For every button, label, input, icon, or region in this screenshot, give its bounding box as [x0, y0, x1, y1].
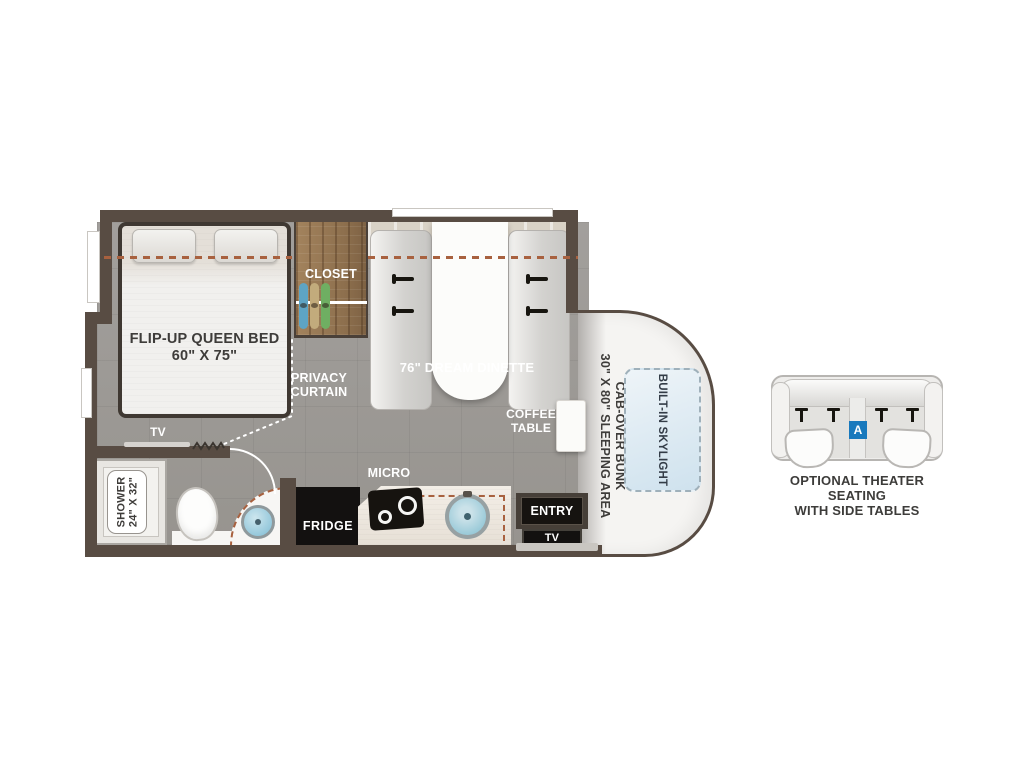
seatbelt-icon — [880, 409, 883, 422]
privacy-curtain-path — [224, 340, 292, 444]
seatbelt-icon — [832, 409, 835, 422]
option-a-badge: A — [849, 421, 867, 439]
seatbelt-icon — [911, 409, 914, 422]
option-a-badge-label: A — [854, 423, 863, 437]
seatbelt-icon — [800, 409, 803, 422]
theater-caption: OPTIONAL THEATER SEATING WITH SIDE TABLE… — [762, 473, 952, 518]
floorplan-canvas: SHOWER 24" X 32" FRIDGE ENTRY TV TV CLOS… — [0, 0, 1024, 768]
curtain-zigzag-icon — [193, 443, 224, 449]
